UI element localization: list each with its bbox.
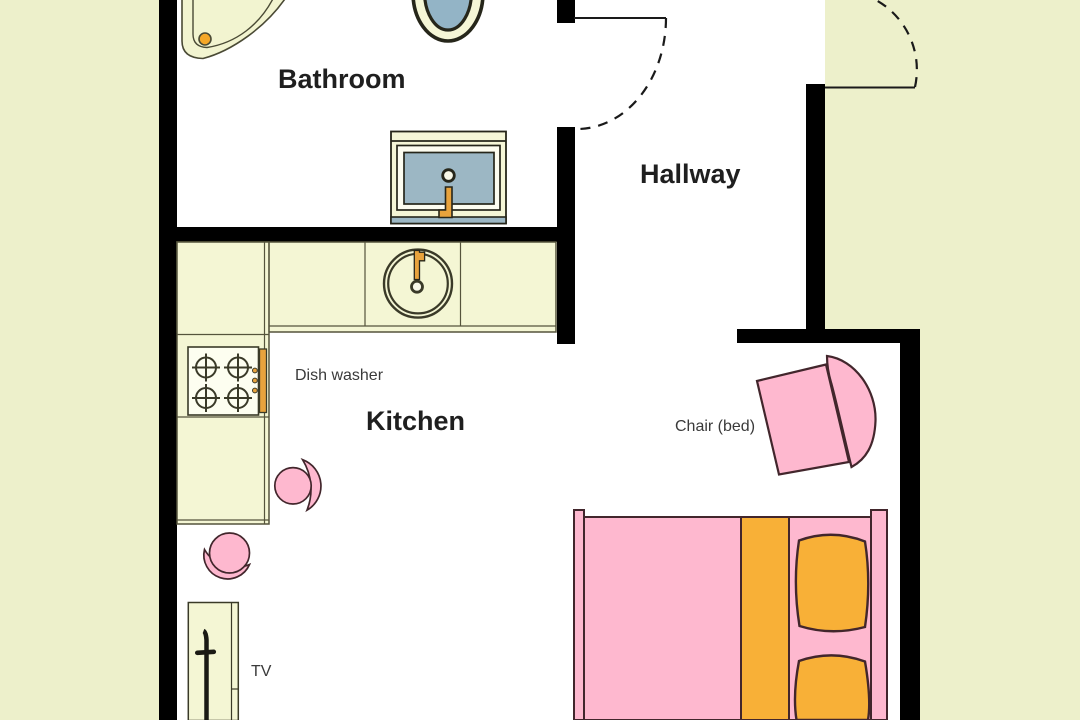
svg-text:Dish washer: Dish washer bbox=[295, 367, 384, 384]
svg-text:Chair (bed): Chair (bed) bbox=[675, 418, 755, 435]
svg-text:Kitchen: Kitchen bbox=[366, 406, 465, 436]
svg-text:Hallway: Hallway bbox=[640, 159, 741, 189]
svg-text:TV: TV bbox=[251, 663, 272, 680]
svg-text:Bathroom: Bathroom bbox=[278, 64, 406, 94]
